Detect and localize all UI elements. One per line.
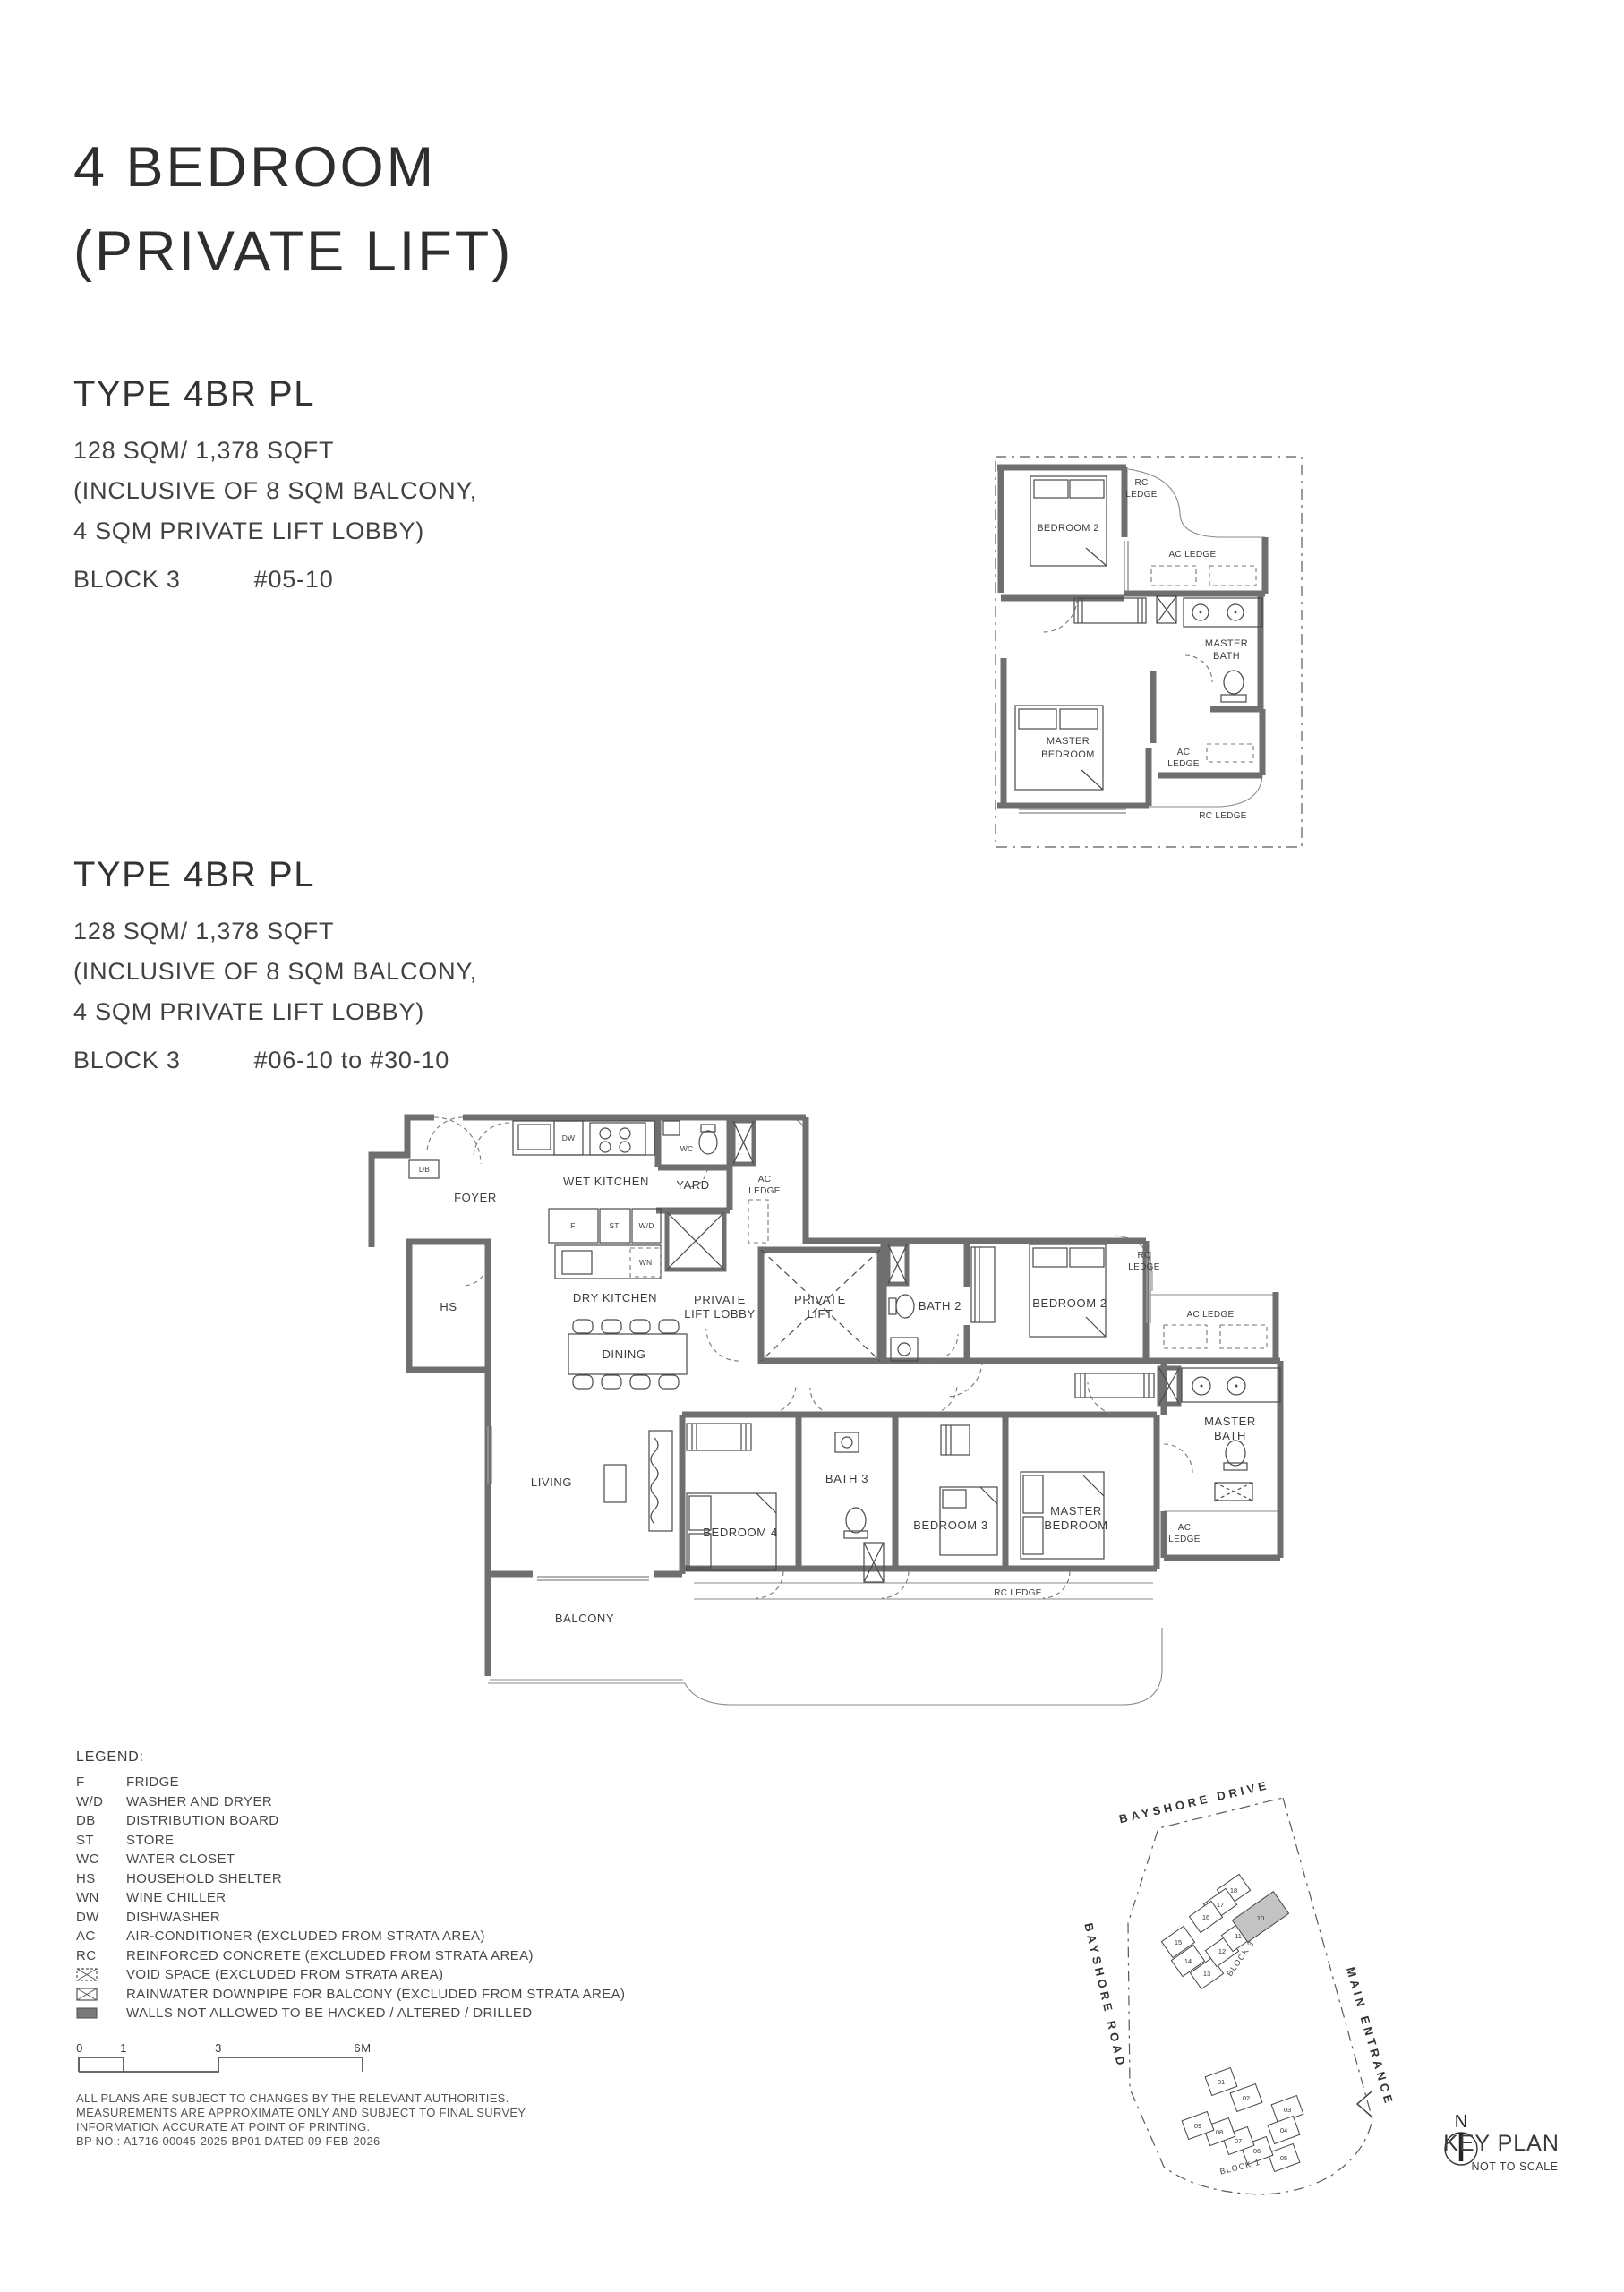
north-label: N [1455,2112,1467,2132]
type-block-units: BLOCK 3#06-10 to #30-10 [73,1047,477,1074]
room-label-private-lift-1: PRIVATE [794,1293,846,1306]
fixtures [409,1121,1280,1580]
room-label-living: LIVING [531,1475,572,1489]
unit-number: 17 [1217,1901,1224,1909]
type-area: 128 SQM/ 1,378 SQFT [73,911,477,952]
unit-number: 18 [1230,1886,1237,1894]
legend-label: STORE [126,1833,174,1848]
page-title-line2: (PRIVATE LIFT) [73,210,513,294]
room-label-master-bedroom-1: MASTER [1050,1504,1102,1518]
ledge-label-ac-bottom-2: LEDGE [1168,1535,1200,1544]
room-label-wet-kitchen: WET KITCHEN [563,1175,649,1188]
ledge-label-ac-bottom-2: LEDGE [1167,759,1199,769]
room-label-hs: HS [440,1300,457,1313]
unit-number: 04 [1280,2126,1287,2134]
legend-abbr: RC [76,1948,126,1963]
room-label-master-bath-2: BATH [1214,1429,1246,1442]
unit-range: #06-10 to #30-10 [254,1047,449,1073]
block1-cluster: 01 02 03 04 05 06 07 08 09 BLOCK 1 [1182,2068,1303,2177]
legend-item: ACAIR-CONDITIONER (EXCLUDED FROM STRATA … [76,1927,625,1946]
unit-number: 08 [1216,2128,1223,2136]
ledge-label-rc-top-2: LEDGE [1128,1262,1159,1272]
room-label-master-bath-1: MASTER [1204,1415,1256,1428]
ledge-label-ac-top-1: AC [758,1175,772,1184]
legend-abbr: ST [76,1833,126,1848]
ledge-label-rc-top-1: RC [1137,1251,1150,1261]
room-label-master-bedroom-2: BEDROOM [1044,1518,1107,1532]
key-plan-subtitle: NOT TO SCALE [1471,2160,1558,2173]
label-dw: DW [562,1133,576,1142]
ledge-label-ac-right: AC LEDGE [1187,1310,1235,1320]
disclaimer-line: ALL PLANS ARE SUBJECT TO CHANGES BY THE … [76,2091,528,2106]
walls [997,467,1265,806]
disclaimer-line: BP NO.: A1716-00045-2025-BP01 DATED 09-F… [76,2134,528,2149]
scale-bar-line [79,2057,363,2072]
legend-item: WALLS NOT ALLOWED TO BE HACKED / ALTERED… [76,2004,625,2023]
unit-number: 11 [1235,1932,1242,1940]
legend-item: STSTORE [76,1831,625,1851]
main-entrance-arrow [1357,2091,1372,2117]
room-label-bedroom2: BEDROOM 2 [1037,523,1099,534]
road-label-main-entrance: MAIN ENTRANCE [1344,1965,1397,2108]
legend-item: WNWINE CHILLER [76,1888,625,1908]
block3-cluster: 18 17 16 15 14 13 12 11 10 BLOCK 3 [1161,1874,1288,1988]
hatched-wall-symbol [76,2006,98,2020]
legend-abbr: DB [76,1813,126,1828]
legend-label: VOID SPACE (EXCLUDED FROM STRATA AREA) [126,1967,443,1982]
room-label-yard: YARD [676,1178,710,1192]
ledge-label-ac-bottom-1: AC [1178,1523,1192,1533]
room-label-master-bath-2: BATH [1213,651,1240,662]
room-label-bath3: BATH 3 [825,1472,868,1485]
page-title-line1: 4 BEDROOM [73,125,513,210]
legend-item: RAINWATER DOWNPIPE FOR BALCONY (EXCLUDED… [76,1985,625,2005]
label-wine-chiller: WN [639,1258,653,1267]
disclaimer-line: INFORMATION ACCURATE AT POINT OF PRINTIN… [76,2120,528,2134]
label-washer-dryer: W/D [638,1221,654,1230]
unit-number: 12 [1218,1947,1226,1955]
road-label-bayshore-road: BAYSHORE ROAD [1081,1921,1128,2069]
legend-label: REINFORCED CONCRETE (EXCLUDED FROM STRAT… [126,1948,534,1963]
legend-label: WALLS NOT ALLOWED TO BE HACKED / ALTERED… [126,2005,532,2021]
ledge-label-rc-top-2: LEDGE [1125,490,1157,500]
legend-item: HSHOUSEHOLD SHELTER [76,1869,625,1889]
unit-number: 02 [1243,2094,1250,2102]
unit-number: 15 [1175,1938,1182,1946]
legend: LEGEND: FFRIDGE W/DWASHER AND DRYER DBDI… [76,1749,625,2023]
room-label-lift-lobby-1: PRIVATE [694,1293,746,1306]
room-label-foyer: FOYER [454,1191,497,1204]
room-label-master-bedroom-2: BEDROOM [1041,749,1095,760]
type-inclusive-2: 4 SQM PRIVATE LIFT LOBBY) [73,992,477,1032]
room-label-bedroom4: BEDROOM 4 [703,1526,777,1539]
unit-number: 03 [1284,2106,1291,2114]
void-space-symbol [76,1968,98,1981]
legend-label: WINE CHILLER [126,1890,227,1905]
legend-label: WATER CLOSET [126,1852,235,1867]
label-store: ST [609,1221,619,1230]
block-label: BLOCK 3 [73,566,181,593]
ledge-label-rc-top-1: RC [1134,478,1148,488]
scale-tick-6m: 6M [354,2041,371,2055]
legend-item: FFRIDGE [76,1773,625,1792]
legend-label: DISHWASHER [126,1910,220,1925]
unit-number: 01 [1218,2078,1225,2086]
legend-abbr: WN [76,1890,126,1905]
unit-number: 05 [1280,2154,1287,2162]
type-area: 128 SQM/ 1,378 SQFT [73,431,477,471]
ledge-label-rc-bottom: RC LEDGE [994,1588,1042,1598]
legend-item: W/DWASHER AND DRYER [76,1792,625,1812]
unit-number: 09 [1194,2122,1201,2130]
type-block-2: TYPE 4BR PL 128 SQM/ 1,378 SQFT (INCLUSI… [73,855,477,1074]
legend-title: LEGEND: [76,1749,625,1766]
ledge-label-rc-bottom: RC LEDGE [1199,811,1247,821]
type-name: TYPE 4BR PL [73,374,477,415]
type-inclusive-1: (INCLUSIVE OF 8 SQM BALCONY, [73,952,477,992]
unit-number: 14 [1184,1957,1192,1965]
legend-label: AIR-CONDITIONER (EXCLUDED FROM STRATA AR… [126,1929,485,1944]
unit-number: 13 [1203,1970,1210,1978]
room-label-dining: DINING [602,1347,645,1361]
floorplan-page: 4 BEDROOM (PRIVATE LIFT) TYPE 4BR PL 128… [0,0,1624,2292]
unit-range: #05-10 [254,566,334,593]
partial-floor-plan: BEDROOM 2 RC LEDGE AC LEDGE MASTER BATH … [992,448,1341,868]
legend-label: RAINWATER DOWNPIPE FOR BALCONY (EXCLUDED… [126,1987,625,2002]
legend-label: DISTRIBUTION BOARD [126,1813,279,1828]
room-label-balcony: BALCONY [555,1612,614,1625]
room-label-bath2: BATH 2 [919,1299,962,1313]
key-plan: BAYSHORE DRIVE BAYSHORE ROAD MAIN ENTRAN… [1056,1782,1603,2229]
page-title: 4 BEDROOM (PRIVATE LIFT) [73,125,513,294]
legend-label: WASHER AND DRYER [126,1794,272,1809]
room-label-bedroom2: BEDROOM 2 [1032,1296,1107,1310]
block-label: BLOCK 3 [73,1047,181,1073]
legend-abbr: WC [76,1852,126,1867]
legend-item: WCWATER CLOSET [76,1850,625,1869]
legend-item: DBDISTRIBUTION BOARD [76,1811,625,1831]
room-label-lift-lobby-2: LIFT LOBBY [684,1307,755,1321]
legend-item: RCREINFORCED CONCRETE (EXCLUDED FROM STR… [76,1946,625,1966]
unit-number: 06 [1253,2147,1261,2155]
highlighted-unit-number: 10 [1257,1914,1264,1922]
legend-label: HOUSEHOLD SHELTER [126,1871,282,1886]
ledge-label-ac-bottom-1: AC [1177,748,1191,757]
room-label-bedroom3: BEDROOM 3 [913,1518,987,1532]
type-block-units: BLOCK 3#05-10 [73,566,477,594]
room-label-dry-kitchen: DRY KITCHEN [573,1291,657,1304]
legend-abbr: F [76,1775,126,1790]
label-wc: WC [680,1144,694,1153]
type-name: TYPE 4BR PL [73,855,477,895]
block1-label: BLOCK 1 [1219,2158,1261,2177]
scale-tick-3: 3 [215,2041,222,2055]
room-label-master-bedroom-1: MASTER [1047,736,1090,747]
legend-item: DWDISHWASHER [76,1908,625,1928]
type-inclusive-2: 4 SQM PRIVATE LIFT LOBBY) [73,511,477,552]
legend-abbr: W/D [76,1794,126,1809]
scale-tick-0: 0 [76,2041,83,2055]
rainwater-downpipe-symbol [76,1988,98,2001]
type-inclusive-1: (INCLUSIVE OF 8 SQM BALCONY, [73,471,477,511]
legend-abbr: AC [76,1929,126,1944]
scale-bar: 0 1 3 6M [76,2040,380,2079]
legend-abbr: DW [76,1910,126,1925]
label-db: DB [419,1165,430,1174]
legend-label: FRIDGE [126,1775,179,1790]
legend-abbr: HS [76,1871,126,1886]
disclaimer-line: MEASUREMENTS ARE APPROXIMATE ONLY AND SU… [76,2106,528,2120]
unit-number: 07 [1235,2137,1242,2145]
disclaimer: ALL PLANS ARE SUBJECT TO CHANGES BY THE … [76,2091,528,2149]
room-label-master-bath-1: MASTER [1205,638,1248,649]
label-fridge: F [570,1221,575,1230]
legend-item: VOID SPACE (EXCLUDED FROM STRATA AREA) [76,1965,625,1985]
ledge-label-ac-right: AC LEDGE [1169,550,1217,560]
unit-number: 16 [1202,1913,1209,1921]
room-label-private-lift-2: LIFT [807,1307,833,1321]
main-floor-plan: DB FOYER DW WET KITCHEN WC YARD AC LEDGE… [354,1099,1312,1717]
type-block-1: TYPE 4BR PL 128 SQM/ 1,378 SQFT (INCLUSI… [73,374,477,594]
scale-tick-1: 1 [120,2041,127,2055]
ledge-label-ac-top-2: LEDGE [748,1186,780,1196]
key-plan-title: KEY PLAN [1443,2131,1560,2156]
